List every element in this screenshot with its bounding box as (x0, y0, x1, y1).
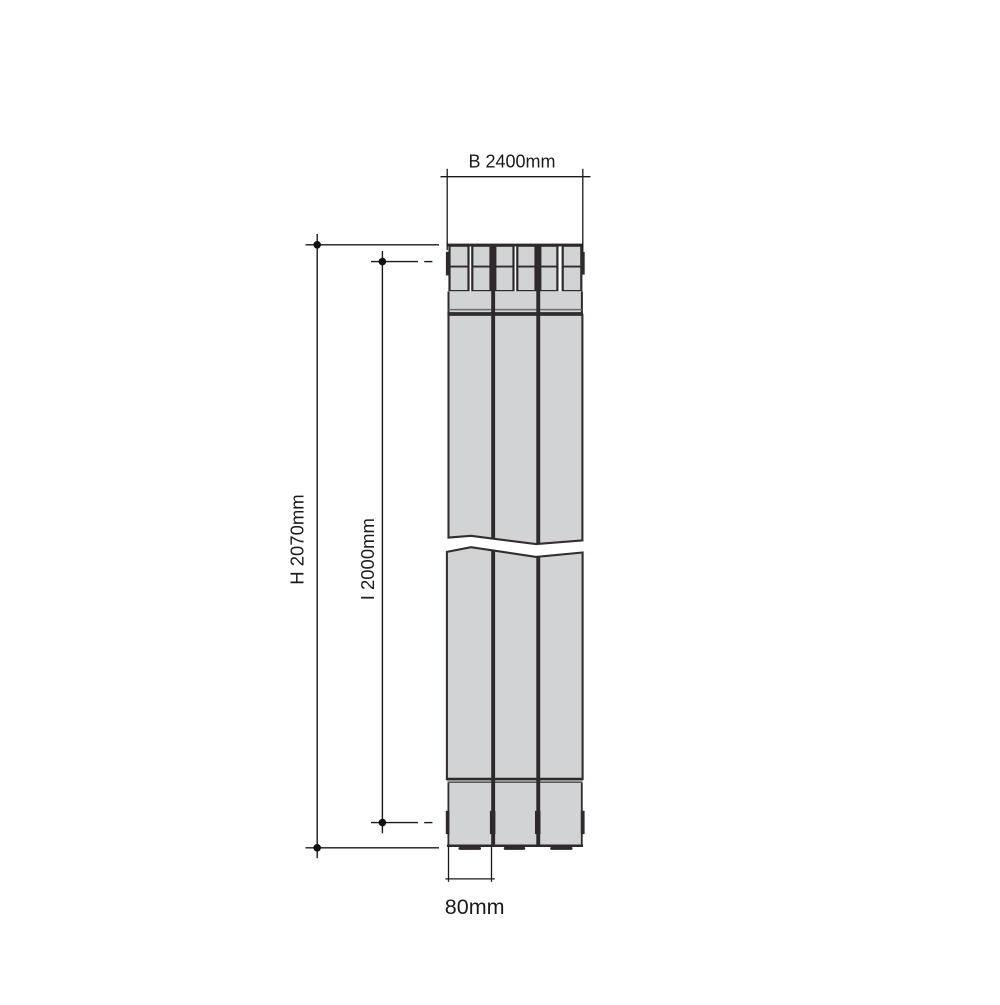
svg-text:I 2000mm: I 2000mm (357, 518, 378, 600)
svg-text:80mm: 80mm (445, 895, 505, 919)
svg-text:H 2070mm: H 2070mm (286, 494, 307, 584)
svg-text:B 2400mm: B 2400mm (468, 151, 555, 171)
